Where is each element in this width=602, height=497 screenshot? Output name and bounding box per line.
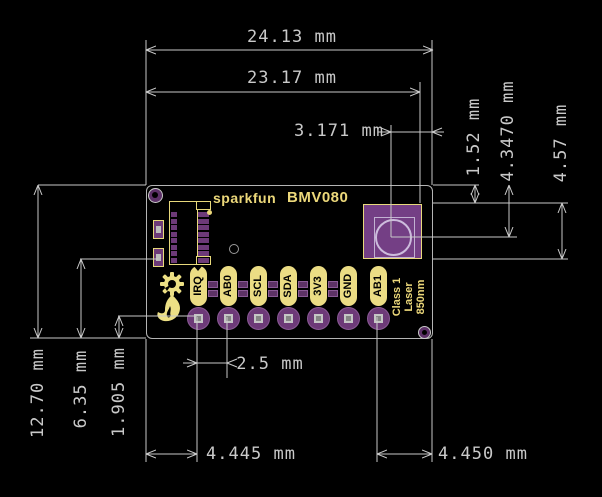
drill-hole [422,330,427,335]
jumper-pad [328,290,338,297]
jumper-pad [268,290,278,297]
dim-board-width: 24.13 mm [247,27,337,47]
jumper-pad [268,281,278,288]
pin-label-ab1: AB1 [370,266,387,306]
jumper-pad [208,281,218,288]
dim-pin-pitch: 2.5 mm [236,354,303,374]
laser-wavelength-text: 850nm [415,280,427,315]
connector-pad [171,219,177,224]
jumper-pad [328,281,338,288]
connector-tab-top [196,201,211,210]
connector-pad [198,225,209,230]
pin-label-irq: IRQ [190,266,207,306]
sparkfun-flame-icon [153,271,191,325]
pin-label-3v3: 3V3 [310,266,327,306]
connector-pad [198,232,209,237]
dim-left-edge-to-first-pin: 4.445 mm [206,444,296,464]
pin1-marker-dot [207,210,212,215]
pin-pad-gnd [337,307,360,330]
dim-board-height: 12.70 mm [28,348,48,438]
dim-circle-center-to-right-edge: 3.171 mm [294,121,384,141]
pin-pad-ab1 [367,307,390,330]
pin-pad-ab0 [217,307,240,330]
dim-left-edge-to-sensor-right: 23.17 mm [247,68,337,88]
fiducial-circle [229,244,239,254]
jumper-pad [208,290,218,297]
dim-top-edge-to-sensor-top: 1.52 mm [464,98,484,177]
dim-bottom-to-pin-row: 1.905 mm [109,347,129,437]
silk-brand-text: sparkfun [213,190,276,206]
connector-pad [198,219,209,224]
pin-pad-3v3 [307,307,330,330]
connector-pad [171,258,177,263]
dim-sensor-height: 4.57 mm [551,104,571,183]
pad-center [156,254,161,261]
smd-pad [153,220,164,239]
jumper-pad [238,281,248,288]
bmv080-sensor [363,204,422,259]
laser-class-text: Class 1 [391,278,403,317]
jumper-pad [298,290,308,297]
connector-pad [171,245,177,250]
connector-pad [171,212,177,217]
mounting-hole-bottom-right [418,326,431,339]
jumper-pad [298,281,308,288]
pin-label-ab0: AB0 [220,266,237,306]
connector-pad [198,251,209,256]
connector-pad [171,251,177,256]
dim-last-pin-to-right-edge: 4.450 mm [438,444,528,464]
pin-pad-sda [277,307,300,330]
connector-pad [198,258,209,263]
pad-center [156,226,161,233]
sensor-aperture-circle [375,219,412,256]
connector-pad [171,232,177,237]
connector-pad [171,225,177,230]
drill-hole [152,192,158,198]
pin-pad-scl [247,307,270,330]
silk-product-text: BMV080 [287,189,348,206]
dimension-drawing: sparkfun BMV080 IRQ AB0 SCL [0,0,602,497]
dim-bottom-to-board-middle: 6.35 mm [71,350,91,429]
laser-type-text: Laser [403,282,415,311]
connector-pad [198,245,209,250]
mounting-hole-top-left [148,188,163,203]
pin-pad-irq [187,307,210,330]
pcb-board: sparkfun BMV080 IRQ AB0 SCL [146,185,433,339]
connector-pad [171,238,177,243]
pin-label-scl: SCL [250,266,267,306]
connector-pad [198,238,209,243]
pin-label-sda: SDA [280,266,297,306]
dim-top-edge-to-circle-center: 4.3470 mm [498,80,518,181]
smd-pad [153,248,164,267]
irq-notch [193,265,203,271]
jumper-pad [238,290,248,297]
pin-label-gnd: GND [340,266,357,306]
